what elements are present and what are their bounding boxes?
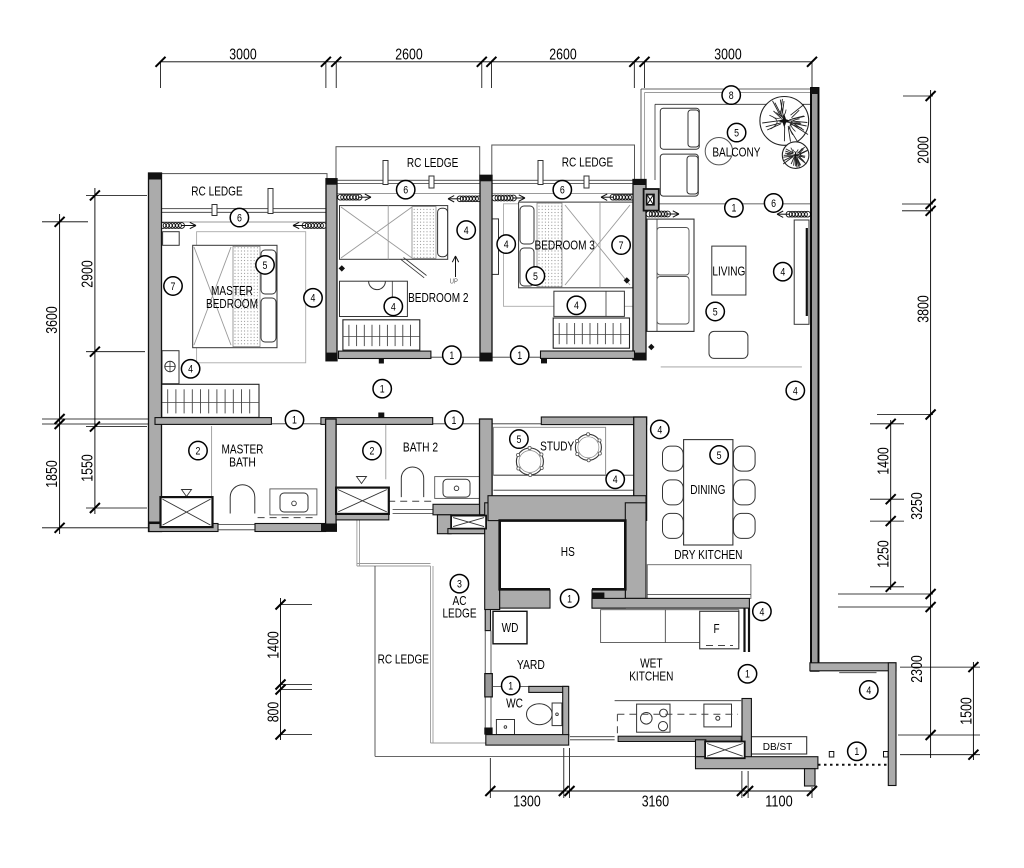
svg-text:1: 1 — [567, 593, 572, 605]
svg-text:1100: 1100 — [765, 794, 793, 811]
svg-text:1: 1 — [508, 681, 513, 693]
svg-text:3800: 3800 — [916, 295, 933, 323]
svg-text:WC: WC — [506, 696, 523, 711]
svg-text:800: 800 — [266, 702, 283, 723]
svg-text:1: 1 — [449, 350, 454, 362]
svg-text:5: 5 — [734, 128, 739, 140]
svg-text:1: 1 — [854, 746, 859, 758]
svg-text:8: 8 — [729, 90, 734, 102]
svg-text:3000: 3000 — [229, 46, 257, 63]
svg-text:4: 4 — [188, 364, 193, 376]
svg-text:6: 6 — [771, 198, 776, 210]
svg-text:BATH 2: BATH 2 — [403, 440, 438, 455]
svg-text:KITCHEN: KITCHEN — [629, 669, 673, 684]
svg-text:3600: 3600 — [44, 306, 61, 334]
svg-text:3160: 3160 — [642, 794, 670, 811]
svg-text:4: 4 — [793, 385, 798, 397]
svg-text:1: 1 — [731, 203, 736, 215]
svg-text:1250: 1250 — [876, 540, 893, 568]
svg-text:1400: 1400 — [266, 631, 283, 659]
svg-text:BATH: BATH — [229, 455, 256, 470]
svg-text:5: 5 — [713, 306, 718, 318]
svg-text:6: 6 — [237, 213, 242, 225]
svg-text:WD: WD — [502, 620, 519, 635]
svg-text:5: 5 — [263, 260, 268, 272]
svg-text:3: 3 — [457, 579, 462, 591]
svg-text:DRY KITCHEN: DRY KITCHEN — [674, 547, 742, 562]
svg-text:RC LEDGE: RC LEDGE — [407, 155, 459, 170]
svg-text:HS: HS — [561, 544, 575, 559]
svg-text:6: 6 — [560, 185, 565, 197]
svg-text:STUDY: STUDY — [540, 439, 574, 454]
svg-text:4: 4 — [657, 424, 662, 436]
svg-text:BEDROOM 3: BEDROOM 3 — [535, 238, 595, 253]
svg-text:4: 4 — [866, 685, 871, 697]
svg-text:1: 1 — [517, 350, 522, 362]
svg-text:YARD: YARD — [517, 657, 545, 672]
svg-text:1300: 1300 — [513, 794, 541, 811]
svg-text:2000: 2000 — [916, 136, 933, 164]
svg-text:F: F — [713, 621, 719, 636]
svg-text:3000: 3000 — [714, 46, 742, 63]
svg-text:1850: 1850 — [44, 460, 61, 488]
svg-text:5: 5 — [516, 434, 521, 446]
svg-text:4: 4 — [574, 300, 579, 312]
svg-text:4: 4 — [464, 225, 469, 237]
svg-text:2900: 2900 — [80, 260, 97, 288]
svg-text:RC LEDGE: RC LEDGE — [378, 652, 430, 667]
svg-text:1550: 1550 — [80, 454, 97, 482]
svg-text:2600: 2600 — [395, 46, 423, 63]
svg-text:1: 1 — [380, 384, 385, 396]
svg-text:DINING: DINING — [690, 482, 725, 497]
svg-text:2: 2 — [370, 446, 375, 458]
svg-text:2600: 2600 — [549, 46, 577, 63]
svg-text:UP: UP — [450, 277, 458, 286]
svg-text:4: 4 — [391, 301, 396, 313]
svg-text:3250: 3250 — [909, 492, 926, 520]
svg-text:4: 4 — [311, 293, 316, 305]
svg-text:1: 1 — [292, 415, 297, 427]
svg-text:1500: 1500 — [958, 697, 975, 725]
svg-text:DB/ST: DB/ST — [763, 741, 793, 753]
svg-text:1: 1 — [745, 669, 750, 681]
svg-text:1: 1 — [452, 415, 457, 427]
svg-text:RC LEDGE: RC LEDGE — [562, 154, 614, 169]
svg-text:BEDROOM 2: BEDROOM 2 — [408, 290, 468, 305]
svg-text:1400: 1400 — [876, 447, 893, 475]
svg-text:LIVING: LIVING — [712, 264, 745, 279]
svg-text:7: 7 — [171, 281, 176, 293]
svg-text:5: 5 — [533, 271, 538, 283]
svg-text:4: 4 — [613, 474, 618, 486]
svg-text:5: 5 — [717, 450, 722, 462]
svg-text:4: 4 — [504, 239, 509, 251]
svg-text:BALCONY: BALCONY — [712, 145, 760, 160]
svg-text:LEDGE: LEDGE — [442, 606, 476, 621]
svg-text:2: 2 — [196, 446, 201, 458]
svg-text:4: 4 — [780, 267, 785, 279]
svg-text:BEDROOM: BEDROOM — [206, 296, 258, 311]
svg-text:6: 6 — [403, 185, 408, 197]
svg-text:2300: 2300 — [909, 655, 926, 683]
svg-text:4: 4 — [759, 606, 764, 618]
svg-text:RC LEDGE: RC LEDGE — [191, 184, 243, 199]
svg-text:7: 7 — [619, 240, 624, 252]
